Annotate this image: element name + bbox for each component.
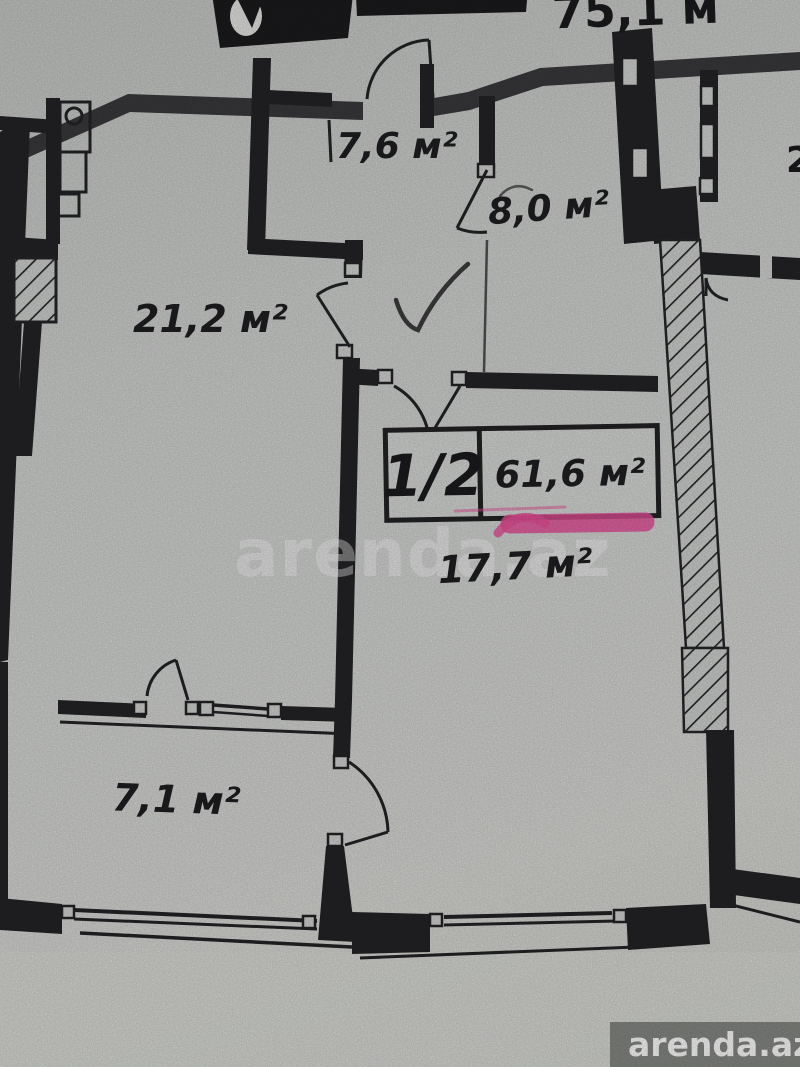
photo-grain-overlay — [0, 0, 800, 1067]
floorplan-photo: 1/2 61,6 м² arenda.az 7,6 м² 8,0 м² 21,2… — [0, 0, 800, 1067]
floorplan-svg: 1/2 61,6 м² arenda.az 7,6 м² 8,0 м² 21,2… — [0, 0, 800, 1067]
